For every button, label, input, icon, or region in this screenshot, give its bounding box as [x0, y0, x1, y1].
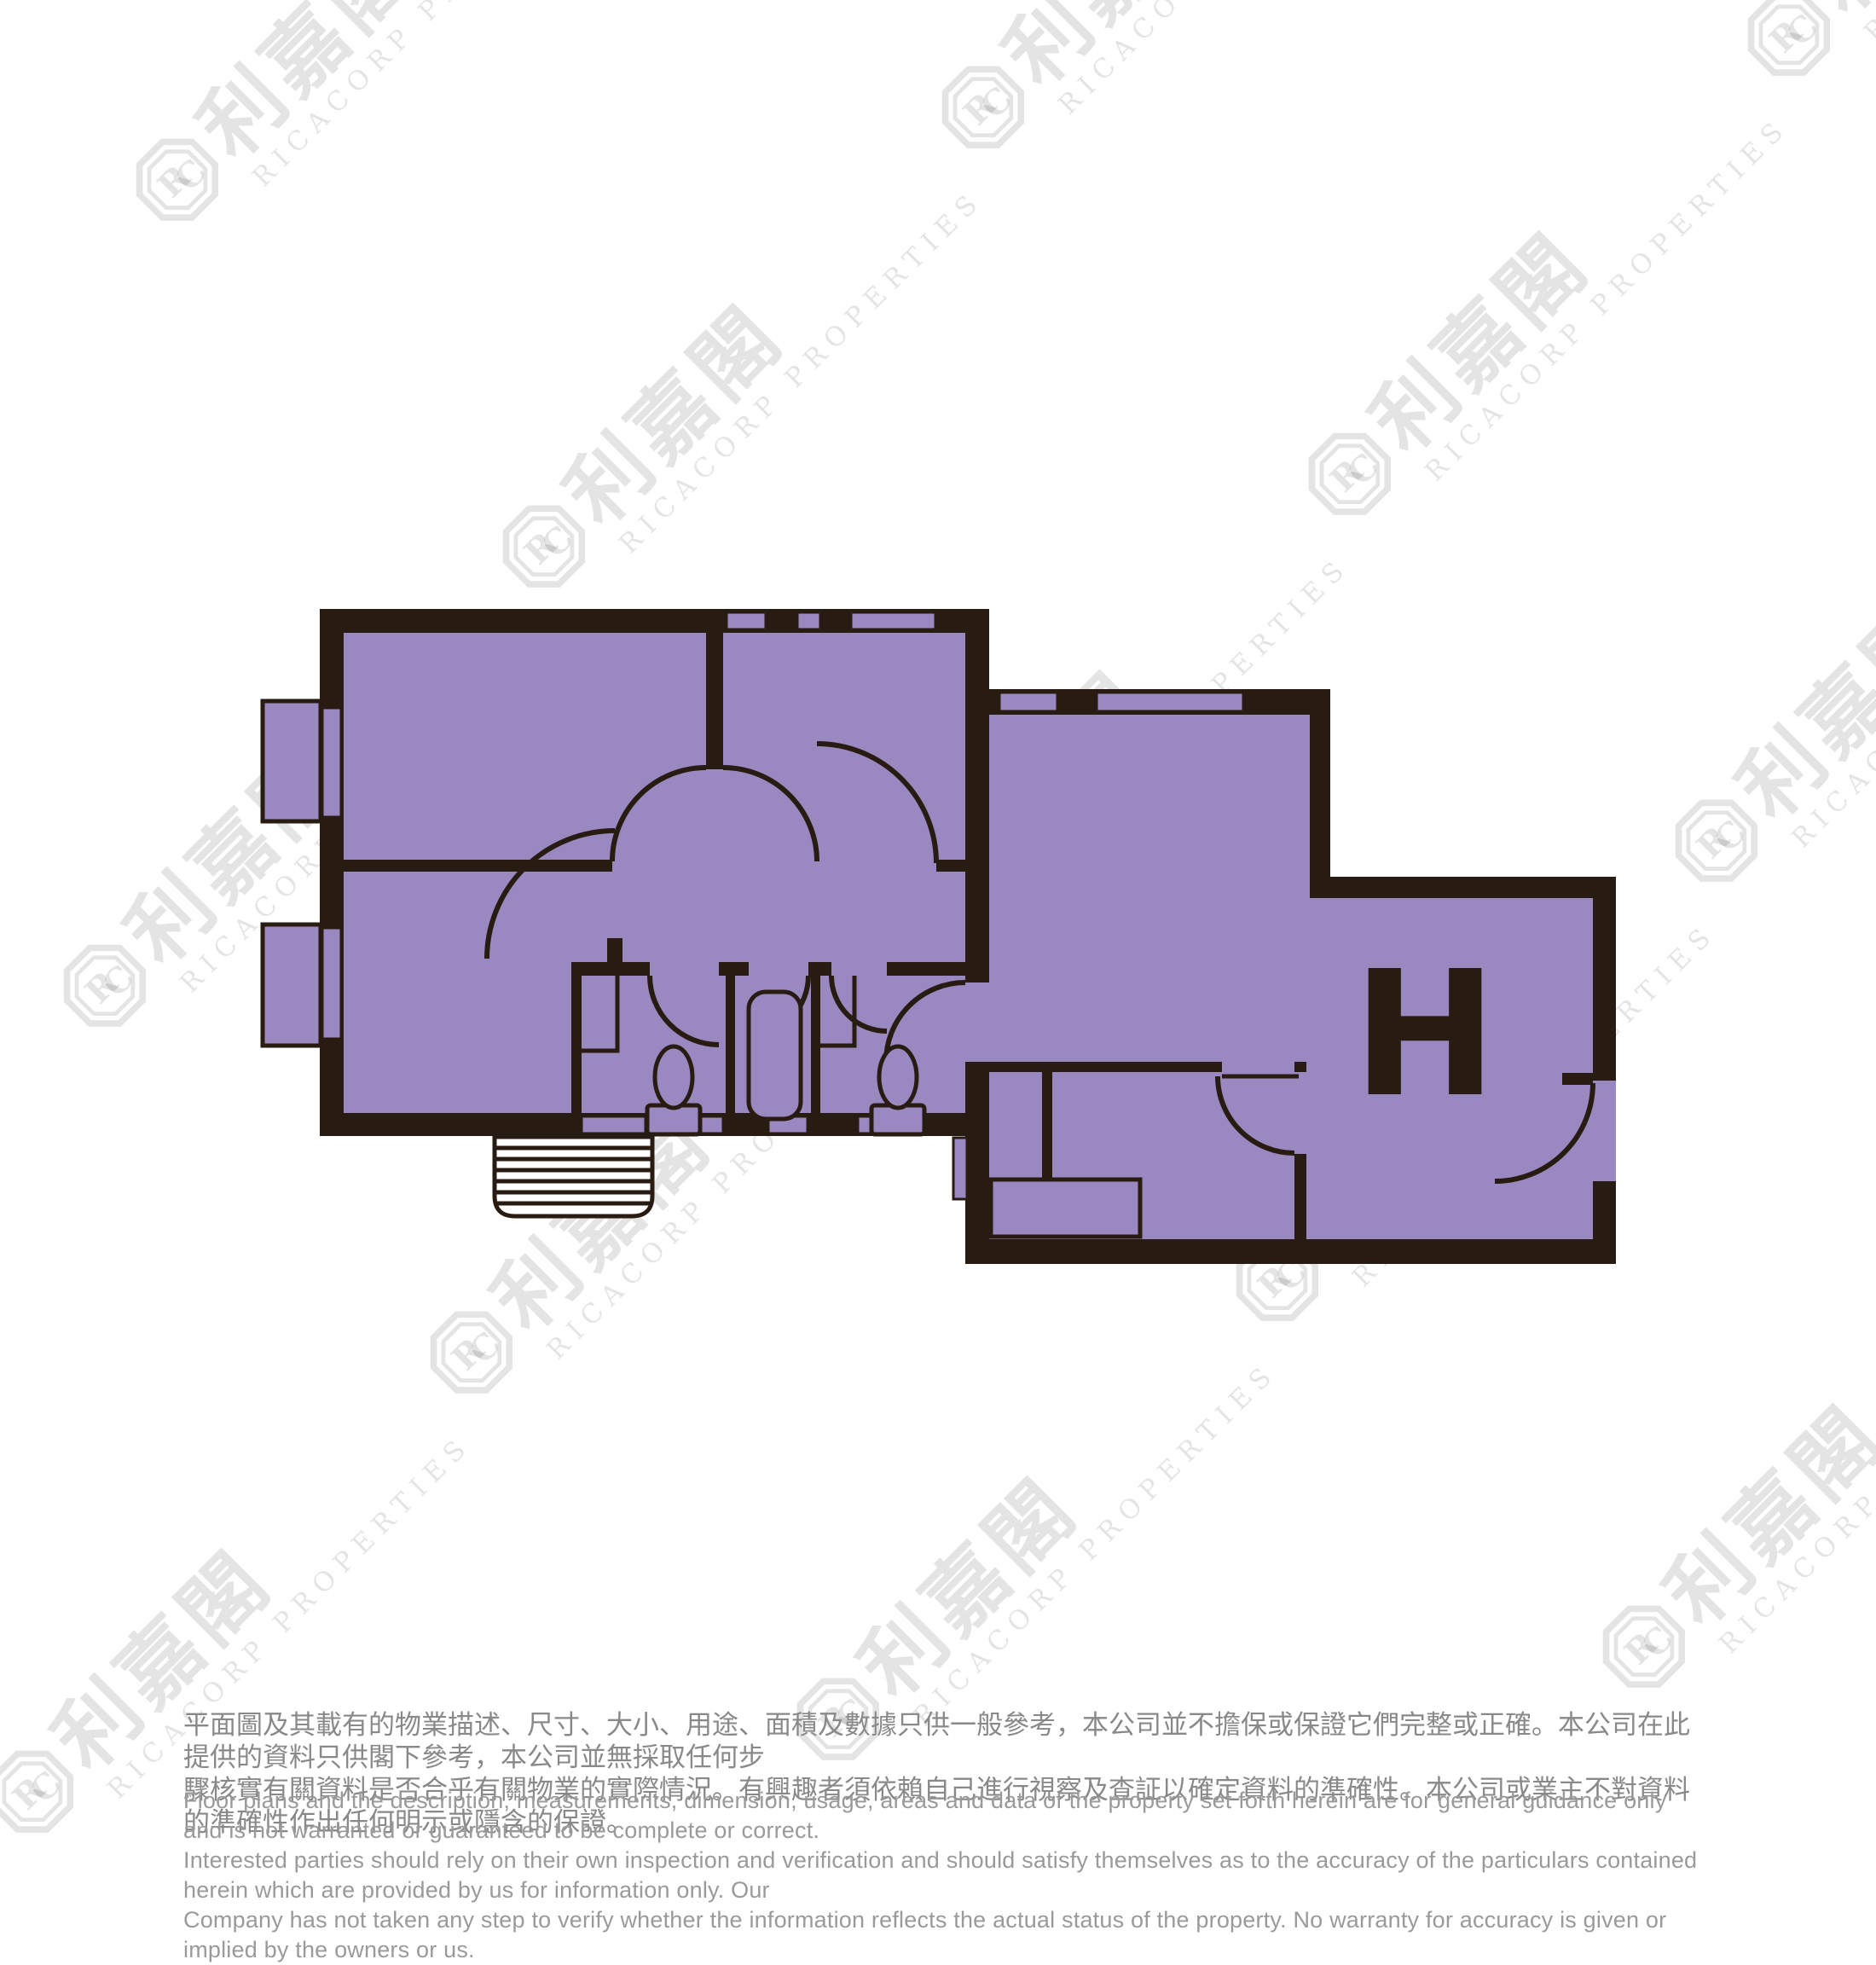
staircase	[495, 1137, 652, 1216]
disclaimer-english: Floor plans and the description, measure…	[183, 1786, 1710, 1965]
window	[322, 928, 341, 1039]
disclaimer-zh-line1: 平面圖及其載有的物業描述、尺寸、大小、用途、面積及數據只供一般參考，本公司並不擔…	[183, 1710, 1690, 1772]
window	[953, 1138, 967, 1199]
disclaimer-en-line1: Floor plans and the description, measure…	[183, 1788, 1666, 1843]
window	[322, 708, 341, 817]
disclaimer-en-line2: Interested parties should rely on their …	[183, 1847, 1697, 1903]
bay-window	[263, 701, 321, 821]
bedroom-partition	[706, 633, 723, 769]
window	[727, 612, 766, 629]
right-door-opening	[1593, 1081, 1616, 1181]
floor-plan: H	[0, 0, 1876, 1876]
window	[1097, 693, 1243, 711]
unit-label: H	[1352, 934, 1497, 1135]
window	[851, 612, 935, 629]
bay-window	[263, 925, 321, 1046]
floor-plan-page: RC利嘉閣RICACORP PROPERTIESRC利嘉閣RICACORP PR…	[0, 0, 1876, 1876]
window	[797, 612, 820, 629]
window	[999, 693, 1057, 711]
bay-windows	[263, 701, 321, 1046]
disclaimer-en-line3: Company has not taken any step to verify…	[183, 1907, 1666, 1962]
bathtub-icon	[749, 992, 801, 1119]
junction-door-opening	[965, 982, 989, 1062]
window	[582, 1116, 646, 1133]
